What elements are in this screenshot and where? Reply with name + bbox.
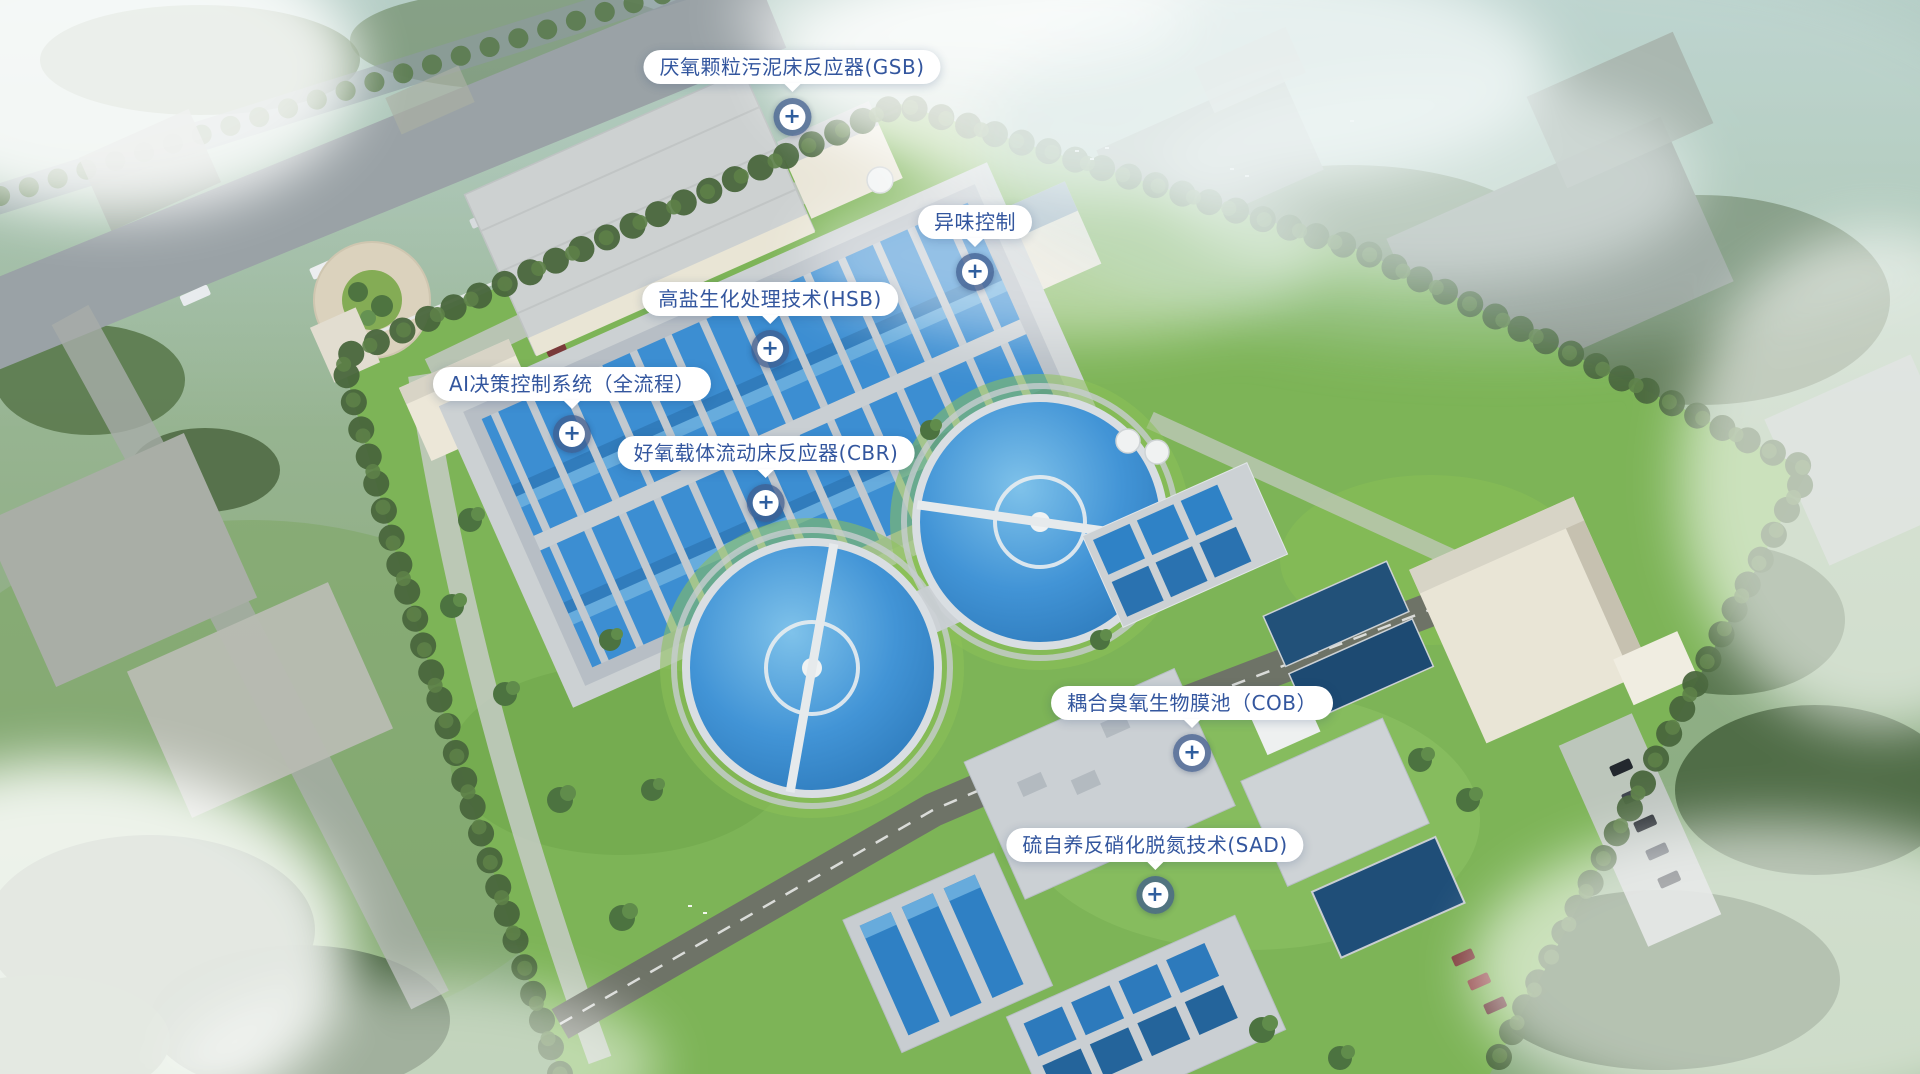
label-pill-cbr[interactable]: 好氧载体流动床反应器(CBR) [618, 436, 915, 470]
label-pointer-cbr [757, 469, 775, 478]
plus-marker-odor[interactable]: + [956, 253, 994, 291]
plus-marker-ai[interactable]: + [553, 415, 591, 453]
label-text-cob: 耦合臭氧生物膜池（COB） [1067, 691, 1317, 715]
label-pill-hsb[interactable]: 高盐生化处理技术(HSB) [642, 282, 898, 316]
label-text-sad: 硫自养反硝化脱氮技术(SAD) [1022, 833, 1287, 857]
plus-icon: + [962, 259, 988, 285]
hotspot-odor: 异味控制 + [918, 205, 1032, 291]
label-pointer-odor [966, 238, 984, 247]
plus-marker-cbr[interactable]: + [747, 484, 785, 522]
label-pointer-hsb [761, 315, 779, 324]
plus-marker-sad[interactable]: + [1136, 876, 1174, 914]
plus-marker-gsb[interactable]: + [773, 98, 811, 136]
label-text-odor: 异味控制 [934, 210, 1016, 234]
label-pill-gsb[interactable]: 厌氧颗粒污泥床反应器(GSB) [643, 50, 940, 84]
hotspot-cob: 耦合臭氧生物膜池（COB） + [1051, 686, 1333, 772]
hotspot-sad: 硫自养反硝化脱氮技术(SAD) + [1006, 828, 1303, 914]
hotspot-cbr: 好氧载体流动床反应器(CBR) + [618, 436, 915, 522]
label-text-cbr: 好氧载体流动床反应器(CBR) [634, 441, 899, 465]
label-pointer-cob [1183, 719, 1201, 728]
plant-aerial-view: 厌氧颗粒污泥床反应器(GSB) + 异味控制 + 高盐生化处理技术(HSB) +… [0, 0, 1920, 1074]
plus-icon: + [779, 104, 805, 130]
plus-icon: + [757, 336, 783, 362]
label-text-hsb: 高盐生化处理技术(HSB) [658, 287, 882, 311]
plus-marker-hsb[interactable]: + [751, 330, 789, 368]
plus-icon: + [1142, 882, 1168, 908]
plus-icon: + [753, 490, 779, 516]
label-pill-odor[interactable]: 异味控制 [918, 205, 1032, 239]
label-pill-ai[interactable]: AI决策控制系统（全流程） [433, 367, 711, 401]
label-pointer-gsb [783, 83, 801, 92]
label-text-gsb: 厌氧颗粒污泥床反应器(GSB) [659, 55, 924, 79]
hotspot-hsb: 高盐生化处理技术(HSB) + [642, 282, 898, 368]
label-pointer-sad [1146, 861, 1164, 870]
hotspot-gsb: 厌氧颗粒污泥床反应器(GSB) + [643, 50, 940, 136]
label-pill-cob[interactable]: 耦合臭氧生物膜池（COB） [1051, 686, 1333, 720]
plus-icon: + [1179, 740, 1205, 766]
plus-icon: + [559, 421, 585, 447]
scene-rendering [0, 0, 1920, 1074]
label-pointer-ai [563, 400, 581, 409]
plus-marker-cob[interactable]: + [1173, 734, 1211, 772]
label-text-ai: AI决策控制系统（全流程） [449, 372, 695, 396]
label-pill-sad[interactable]: 硫自养反硝化脱氮技术(SAD) [1006, 828, 1303, 862]
